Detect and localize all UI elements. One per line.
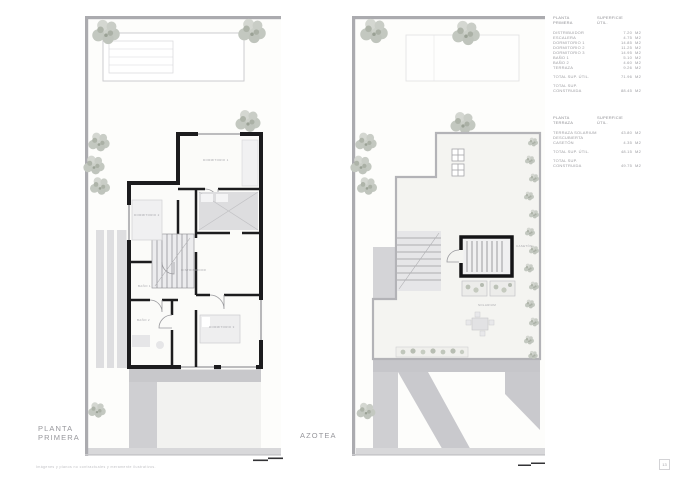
surface-tables: PLANTAPRIMERA SUPERFICIEÚTIL. DISTRIBUID… [553,15,641,168]
room-label-dormitorio3: DORMITORIO 3 [209,325,235,329]
footer-disclaimer: Imágenes y planos no contractuales y mer… [36,465,156,469]
scale-bar-right [518,463,545,467]
table-total-util: TOTAL SUP. ÚTIL.48.15M2 [553,149,641,154]
table-planta-primera: PLANTAPRIMERA SUPERFICIEÚTIL. DISTRIBUID… [553,15,641,93]
room-label-banio2: BAÑO 2 [137,318,150,322]
plan-title-azotea: AZOTEA [300,431,337,440]
table-header: PLANTATERRAZA SUPERFICIEÚTIL. [553,115,641,125]
table-total-construida-line2: CONSTRUIDA49.75M2 [553,163,641,168]
drawing-sheet: DORMITORIO 1 DORMITORIO 2 DORMITORIO 3 B… [0,0,678,480]
room-label-caseton: CASETÓN [516,244,533,248]
header-floor: PLANTAPRIMERA [553,15,597,25]
table-header: PLANTAPRIMERA SUPERFICIEÚTIL. [553,15,641,25]
plan-title-line2: PRIMERA [38,433,80,442]
plan-title-planta-primera: PLANTAPRIMERA [38,424,80,442]
page-number: 13 [659,459,670,470]
room-label-dormitorio2: DORMITORIO 2 [134,213,160,217]
room-label-dormitorio1: DORMITORIO 1 [203,158,229,162]
table-row: CASETÓN4.35M2 [553,140,641,145]
table-total-util: TOTAL SUP. ÚTIL.71.96M2 [553,74,641,79]
table-planta-terraza: PLANTATERRAZA SUPERFICIEÚTIL. TERRAZA SO… [553,115,641,168]
header-surface: SUPERFICIEÚTIL. [597,115,641,125]
panel-azotea [350,16,545,466]
header-floor: PLANTATERRAZA [553,115,597,125]
plan-title-line1: AZOTEA [300,431,337,440]
staircase [152,234,194,288]
room-label-solarium: SOLARIUM [478,303,496,307]
room-label-distribuidor: DISTRIBUIDOR [181,268,206,272]
table-total-construida-line2: CONSTRUIDA88.45M2 [553,88,641,93]
room-label-banio1: BAÑO 1 [138,284,151,288]
plan-title-line1: PLANTA [38,424,73,433]
pool-outline [406,35,519,81]
table-row: TERRAZA9.26M2 [553,65,641,70]
pool [103,33,244,81]
header-surface: SUPERFICIEÚTIL. [597,15,641,25]
panel-planta-primera [83,16,283,461]
stair-void [397,231,441,291]
scale-bar-left [253,458,283,462]
